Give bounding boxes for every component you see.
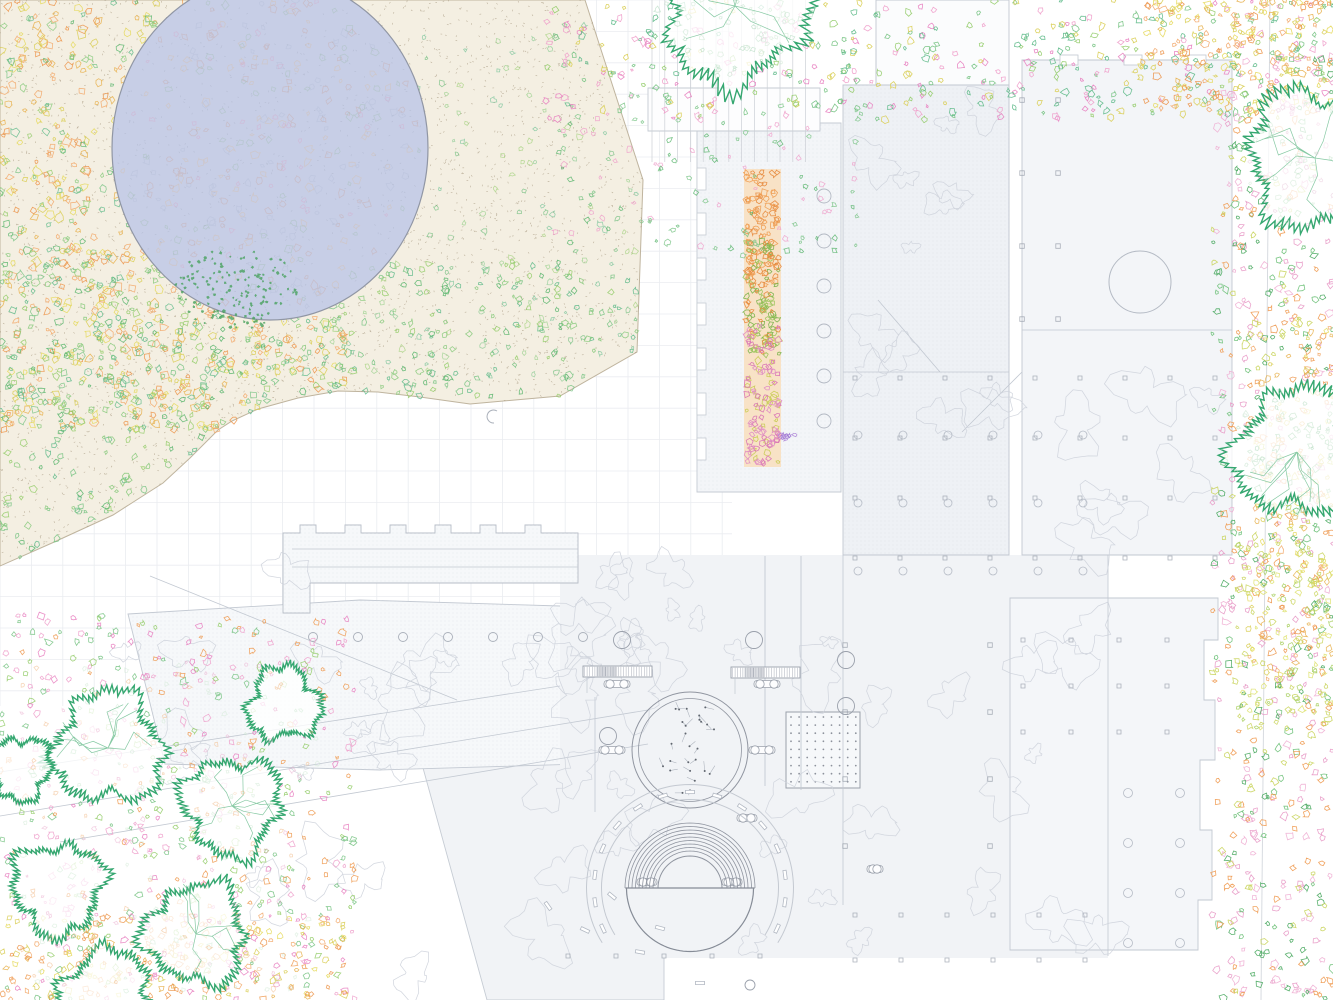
site-plan [0,0,1333,1000]
tree-canopy-sw-3 [9,840,115,946]
circular-room [1109,251,1171,313]
right-yellow-patch [1234,539,1333,731]
tree-canopy-sw-7 [0,736,55,805]
building-north [876,0,1009,85]
building-southeast [1010,598,1218,950]
plate-terrace-east [843,85,1009,555]
tree-canopy-sw-2 [173,756,286,867]
site-plan-svg [0,0,1333,1000]
